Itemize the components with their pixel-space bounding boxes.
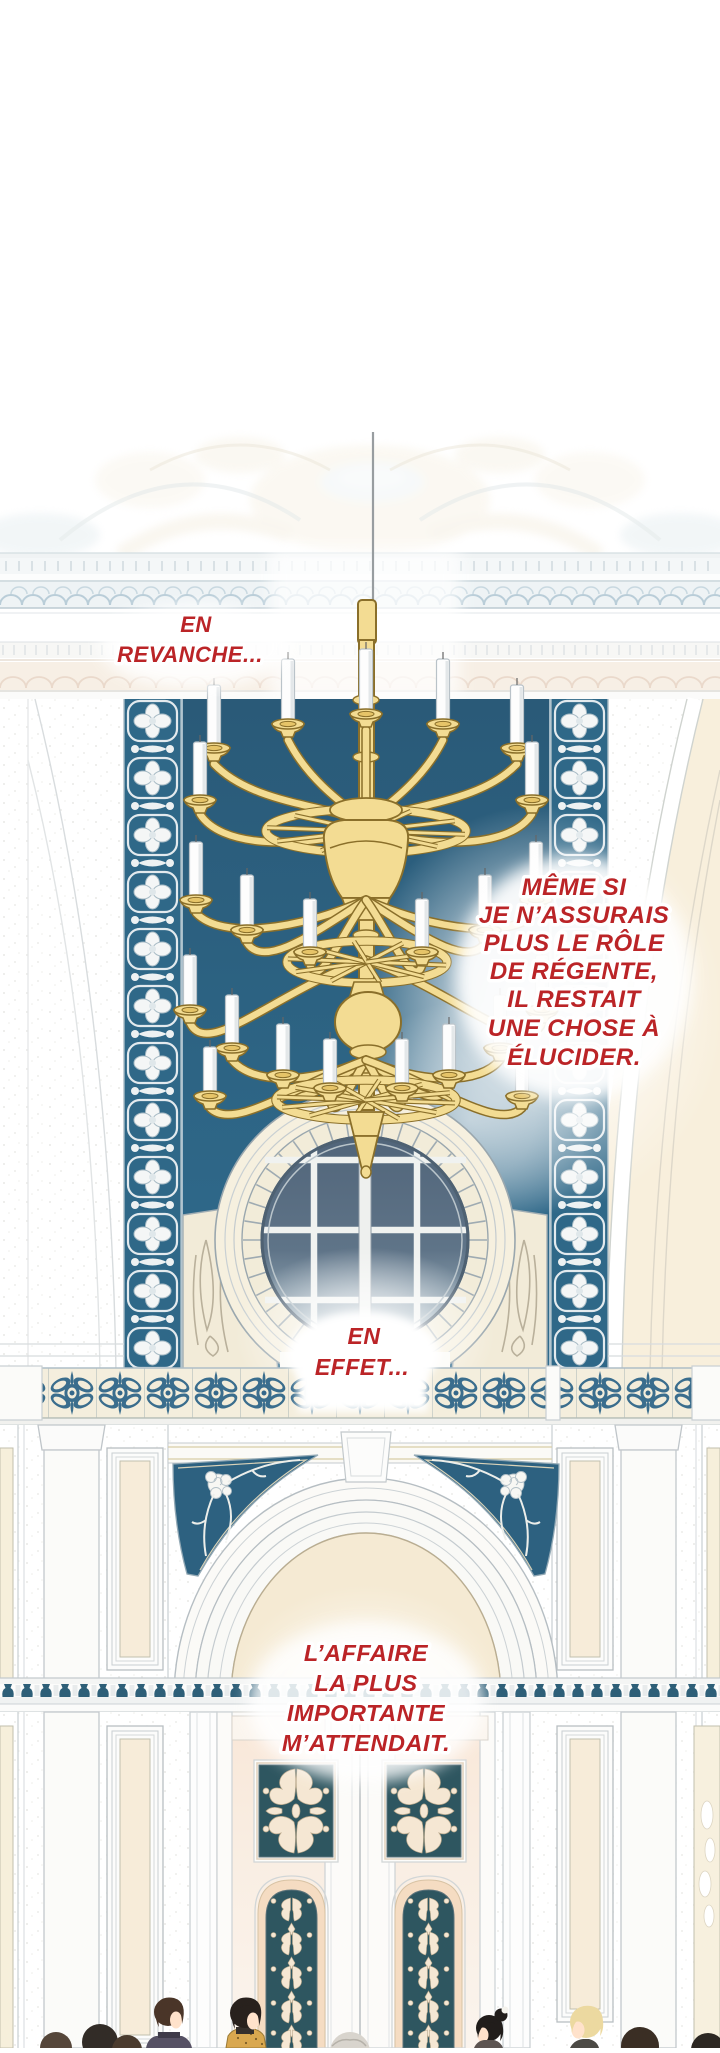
svg-text:LA PLUS: LA PLUS — [314, 1670, 417, 1696]
svg-text:PLUS LE RÔLE: PLUS LE RÔLE — [484, 929, 665, 957]
svg-text:M’ATTENDAIT.: M’ATTENDAIT. — [282, 1730, 450, 1756]
svg-text:MÊME SI: MÊME SI — [522, 873, 628, 901]
svg-text:EFFET...: EFFET... — [315, 1354, 409, 1380]
svg-text:ÉLUCIDER.: ÉLUCIDER. — [507, 1043, 641, 1071]
svg-text:EN: EN — [348, 1323, 381, 1349]
svg-text:JE N’ASSURAIS: JE N’ASSURAIS — [479, 902, 670, 929]
svg-text:UNE CHOSE À: UNE CHOSE À — [488, 1014, 660, 1042]
svg-text:IL RESTAIT: IL RESTAIT — [507, 986, 642, 1013]
svg-text:EN: EN — [180, 612, 212, 637]
svg-text:REVANCHE...: REVANCHE... — [117, 642, 263, 667]
svg-text:IMPORTANTE: IMPORTANTE — [287, 1700, 446, 1726]
svg-text:DE RÉGENTE,: DE RÉGENTE, — [490, 957, 658, 985]
svg-text:L’AFFAIRE: L’AFFAIRE — [304, 1640, 429, 1666]
